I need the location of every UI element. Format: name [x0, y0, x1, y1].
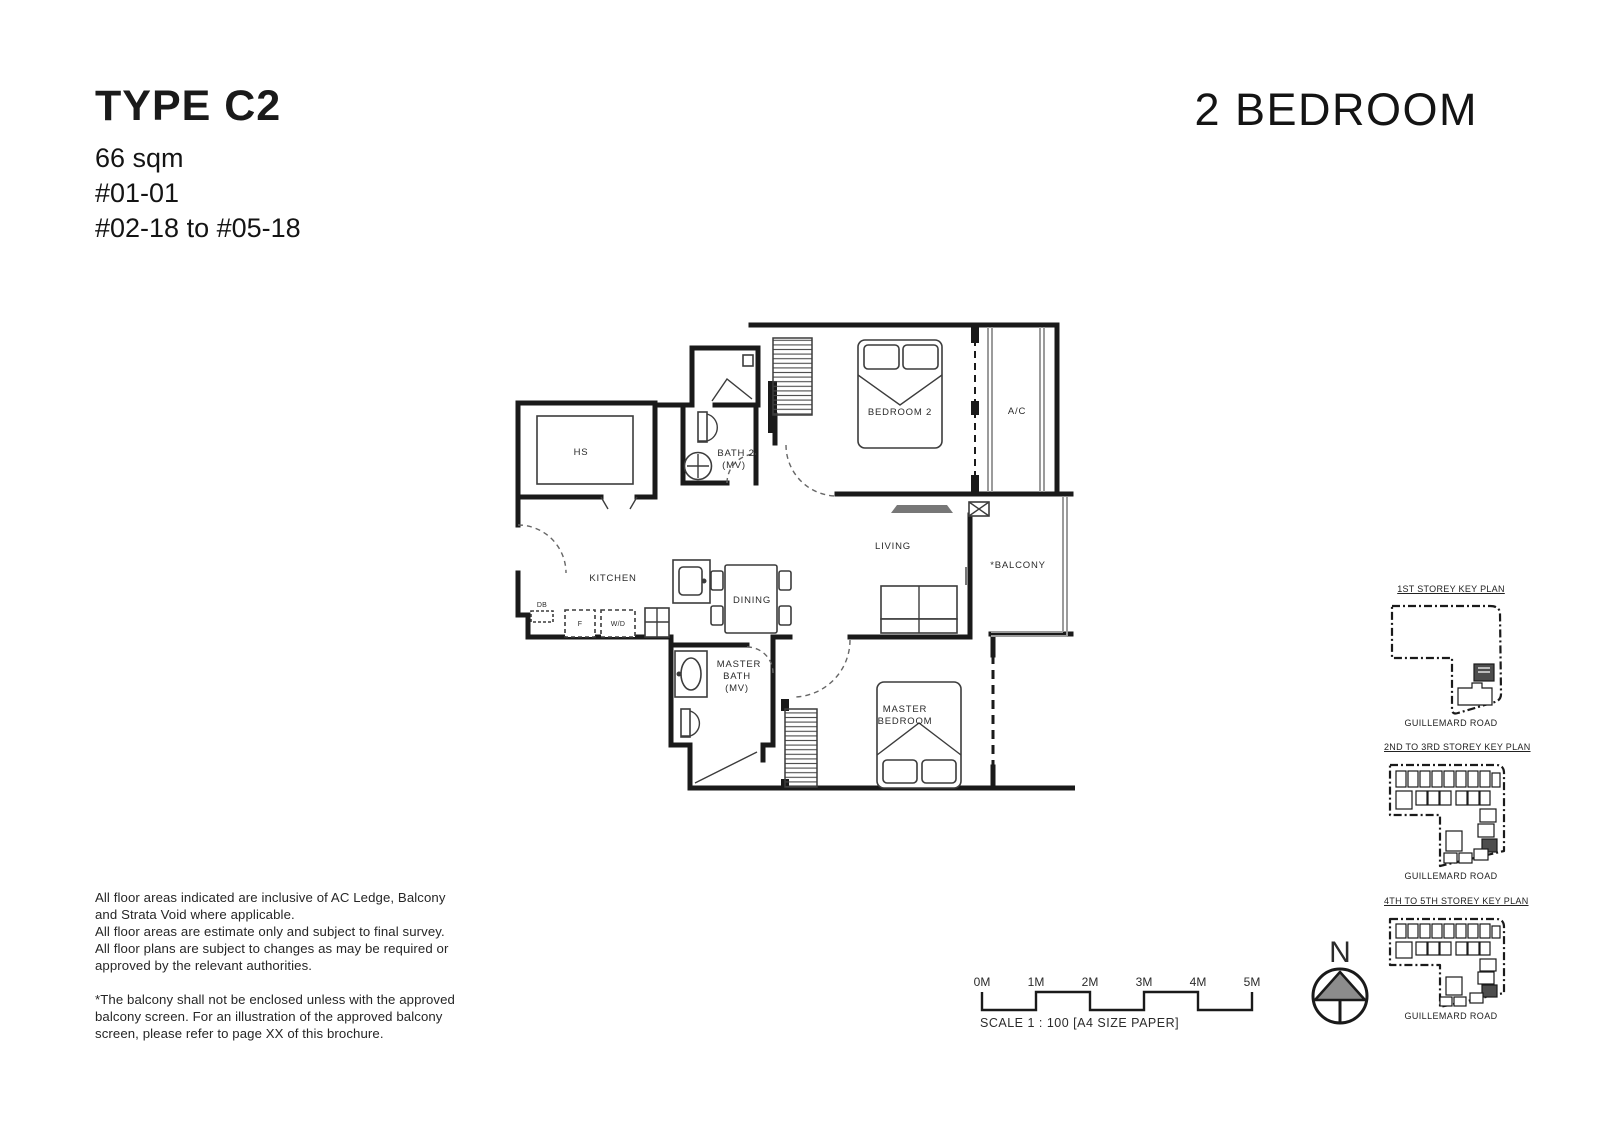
room-label-hs: HS — [574, 447, 589, 458]
bedroom-category: 2 BEDROOM — [1194, 84, 1478, 136]
louver-window-master — [785, 709, 817, 787]
disclaimer-line: *The balcony shall not be enclosed unles… — [95, 991, 455, 1008]
keyplan-1-caption: GUILLEMARD ROAD — [1384, 718, 1518, 728]
unit-area: 66 sqm — [95, 141, 301, 176]
disclaimer-line: All floor plans are subject to changes a… — [95, 940, 455, 957]
room-label-bedroom2: BEDROOM 2 — [868, 407, 932, 418]
disclaimer-line: All floor areas are estimate only and su… — [95, 923, 455, 940]
keyplan-1-drawing — [1384, 598, 1518, 718]
bath2-fixtures — [685, 412, 718, 480]
scale-tick-3m: 3M — [1136, 975, 1153, 989]
disclaimer-text: All floor areas indicated are inclusive … — [95, 889, 455, 1042]
scale-tick-4m: 4M — [1190, 975, 1207, 989]
keyplan-2-caption: GUILLEMARD ROAD — [1384, 871, 1518, 881]
bed-bedroom2 — [858, 340, 942, 448]
scale-tick-1m: 1M — [1028, 975, 1045, 989]
scale-bar-line — [982, 992, 1252, 1010]
keyplan-4th-5th-storey: 4TH TO 5TH STOREY KEY PLAN — [1384, 896, 1518, 1021]
bed-master — [877, 682, 961, 788]
scale-tick-5m: 5M — [1244, 975, 1261, 989]
label-washer-dryer: W/D — [611, 621, 626, 628]
keyplan-3-drawing — [1384, 909, 1518, 1011]
label-db: DB — [537, 602, 547, 609]
room-label-kitchen: KITCHEN — [589, 573, 636, 584]
keyplan-3-title: 4TH TO 5TH STOREY KEY PLAN — [1384, 896, 1518, 906]
room-label-master-bath-3: (MV) — [725, 683, 749, 694]
scale-bar: 0M 1M 2M 3M 4M 5M SCALE 1 : 100 [A4 SIZE… — [948, 968, 1278, 1032]
disclaimer-line: screen, please refer to page XX of this … — [95, 1025, 455, 1042]
keyplan-2nd-3rd-storey: 2ND TO 3RD STOREY KEY PLAN — [1384, 742, 1518, 881]
page-title: TYPE C2 — [95, 82, 281, 131]
keyplan-1-title: 1ST STOREY KEY PLAN — [1384, 584, 1518, 594]
room-label-dining: DINING — [733, 595, 771, 606]
scale-tick-2m: 2M — [1082, 975, 1099, 989]
room-label-master-bed-2: BEDROOM — [878, 716, 933, 727]
disclaimer-paragraph-gap — [95, 974, 455, 991]
room-label-master-bath-1: MASTER — [717, 659, 761, 670]
label-fridge: F — [578, 621, 583, 628]
floorplan-drawing: HS BATH 2 (MV) BEDROOM 2 A/C LIVING *BAL… — [505, 315, 1075, 793]
disclaimer-line: approved by the relevant authorities. — [95, 957, 455, 974]
room-label-balcony: *BALCONY — [990, 560, 1046, 571]
disclaimer-line: balcony screen. For an illustration of t… — [95, 1008, 455, 1025]
unit-stack-1: #01-01 — [95, 176, 301, 211]
keyplan-1st-storey: 1ST STOREY KEY PLAN GUILLEMARD ROAD — [1384, 584, 1518, 728]
room-label-master-bath-2: BATH — [723, 671, 751, 682]
scale-tick-0m: 0M — [974, 975, 991, 989]
room-label-bath2-mv: (MV) — [722, 460, 746, 471]
north-label: N — [1329, 936, 1351, 969]
room-label-bath2: BATH 2 — [717, 448, 754, 459]
tv-console — [891, 505, 953, 513]
unit-stack-2: #02-18 to #05-18 — [95, 211, 301, 246]
living-furniture — [881, 502, 989, 633]
scale-tick-labels: 0M 1M 2M 3M 4M 5M — [974, 975, 1261, 989]
brochure-page: TYPE C2 66 sqm #01-01 #02-18 to #05-18 2… — [0, 0, 1600, 1129]
room-label-ac: A/C — [1008, 406, 1026, 417]
master-bath-fixtures — [675, 651, 707, 737]
keyplan-2-title: 2ND TO 3RD STOREY KEY PLAN — [1384, 742, 1518, 752]
scale-caption: SCALE 1 : 100 [A4 SIZE PAPER] — [980, 1016, 1179, 1030]
unit-info: 66 sqm #01-01 #02-18 to #05-18 — [95, 141, 301, 246]
north-arrow: N — [1298, 928, 1382, 1028]
room-label-master-bed-1: MASTER — [883, 704, 927, 715]
keyplan-2-drawing — [1384, 755, 1518, 871]
disclaimer-line: and Strata Void where applicable. — [95, 906, 455, 923]
louver-window-bedroom2 — [773, 338, 812, 415]
room-label-living: LIVING — [875, 541, 911, 552]
keyplan-3-caption: GUILLEMARD ROAD — [1384, 1011, 1518, 1021]
disclaimer-line: All floor areas indicated are inclusive … — [95, 889, 455, 906]
